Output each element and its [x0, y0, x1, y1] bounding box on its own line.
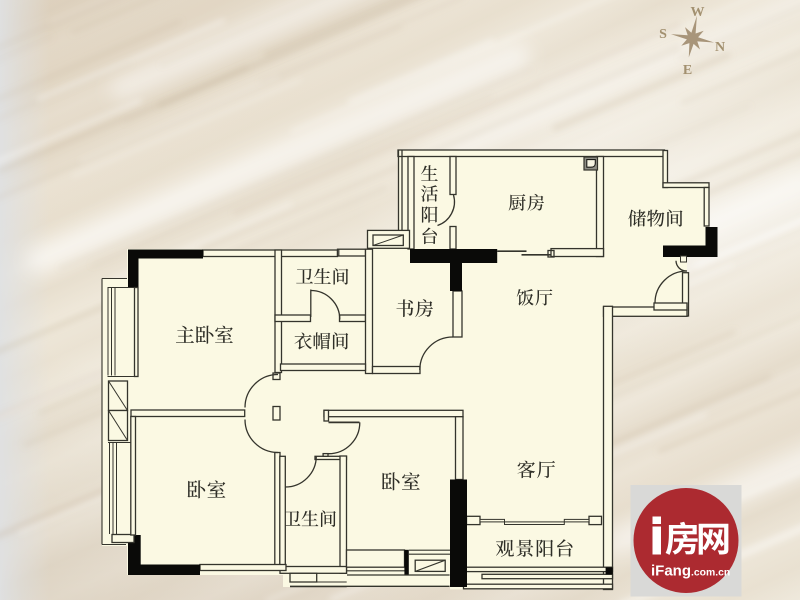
svg-text:S: S [659, 27, 667, 42]
svg-text:N: N [715, 40, 725, 55]
svg-text:E: E [683, 63, 692, 78]
svg-text:W: W [691, 5, 705, 20]
